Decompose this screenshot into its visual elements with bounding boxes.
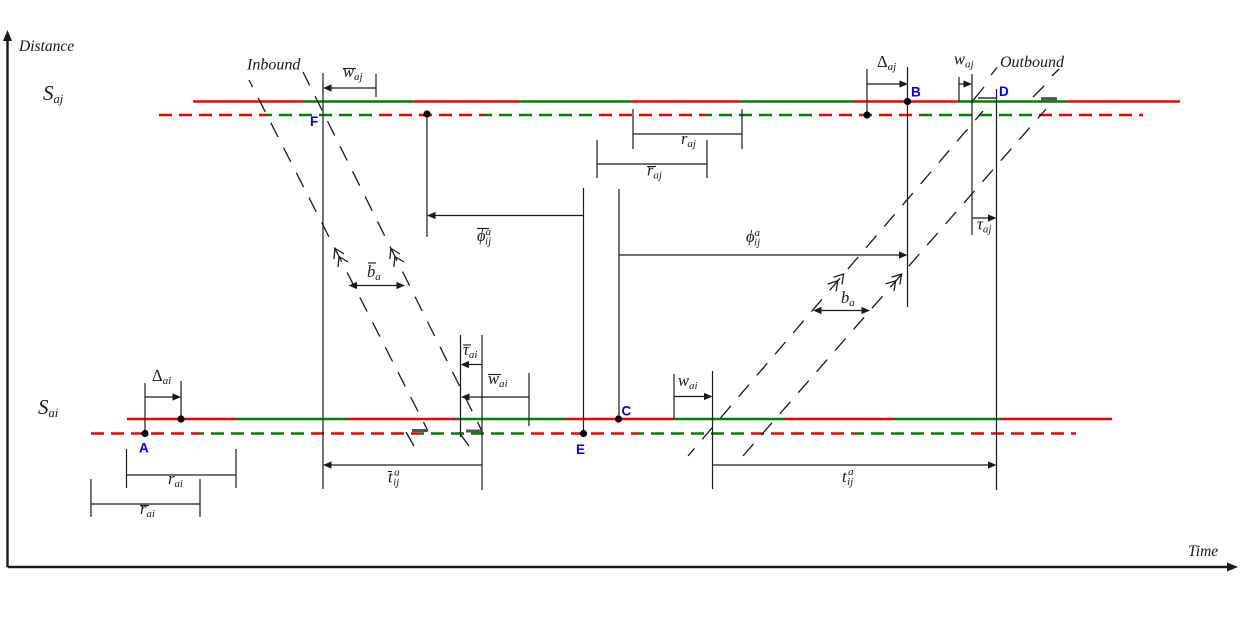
svg-text:rai: rai bbox=[140, 499, 155, 520]
svg-text:taij: taij bbox=[842, 466, 854, 488]
svg-text:waj: waj bbox=[343, 62, 363, 83]
svg-text:Distance: Distance bbox=[18, 38, 74, 55]
svg-text:Δaj: Δaj bbox=[877, 52, 896, 73]
svg-text:ba: ba bbox=[841, 288, 855, 309]
svg-text:taij: taij bbox=[388, 467, 400, 489]
svg-text:Saj: Saj bbox=[43, 81, 64, 106]
svg-text:Time: Time bbox=[1188, 543, 1218, 560]
svg-text:D: D bbox=[999, 84, 1009, 99]
svg-text:ba: ba bbox=[367, 262, 381, 283]
svg-text:Inbound: Inbound bbox=[246, 57, 301, 74]
svg-text:C: C bbox=[622, 404, 632, 419]
svg-text:wai: wai bbox=[678, 371, 698, 392]
svg-text:rai: rai bbox=[168, 469, 183, 490]
svg-text:B: B bbox=[911, 85, 921, 100]
svg-text:A: A bbox=[139, 441, 149, 456]
svg-text:E: E bbox=[576, 442, 585, 457]
svg-text:wai: wai bbox=[488, 369, 508, 390]
svg-text:Sai: Sai bbox=[38, 395, 59, 420]
svg-text:ϕaij: ϕaij bbox=[746, 227, 761, 249]
svg-text:Δai: Δai bbox=[152, 366, 171, 387]
svg-text:raj: raj bbox=[681, 129, 696, 150]
svg-text:waj: waj bbox=[954, 50, 974, 71]
svg-text:ϕaij: ϕaij bbox=[477, 226, 492, 248]
svg-text:τai: τai bbox=[463, 340, 477, 361]
svg-text:F: F bbox=[310, 114, 318, 129]
svg-text:Outbound: Outbound bbox=[1000, 54, 1065, 71]
